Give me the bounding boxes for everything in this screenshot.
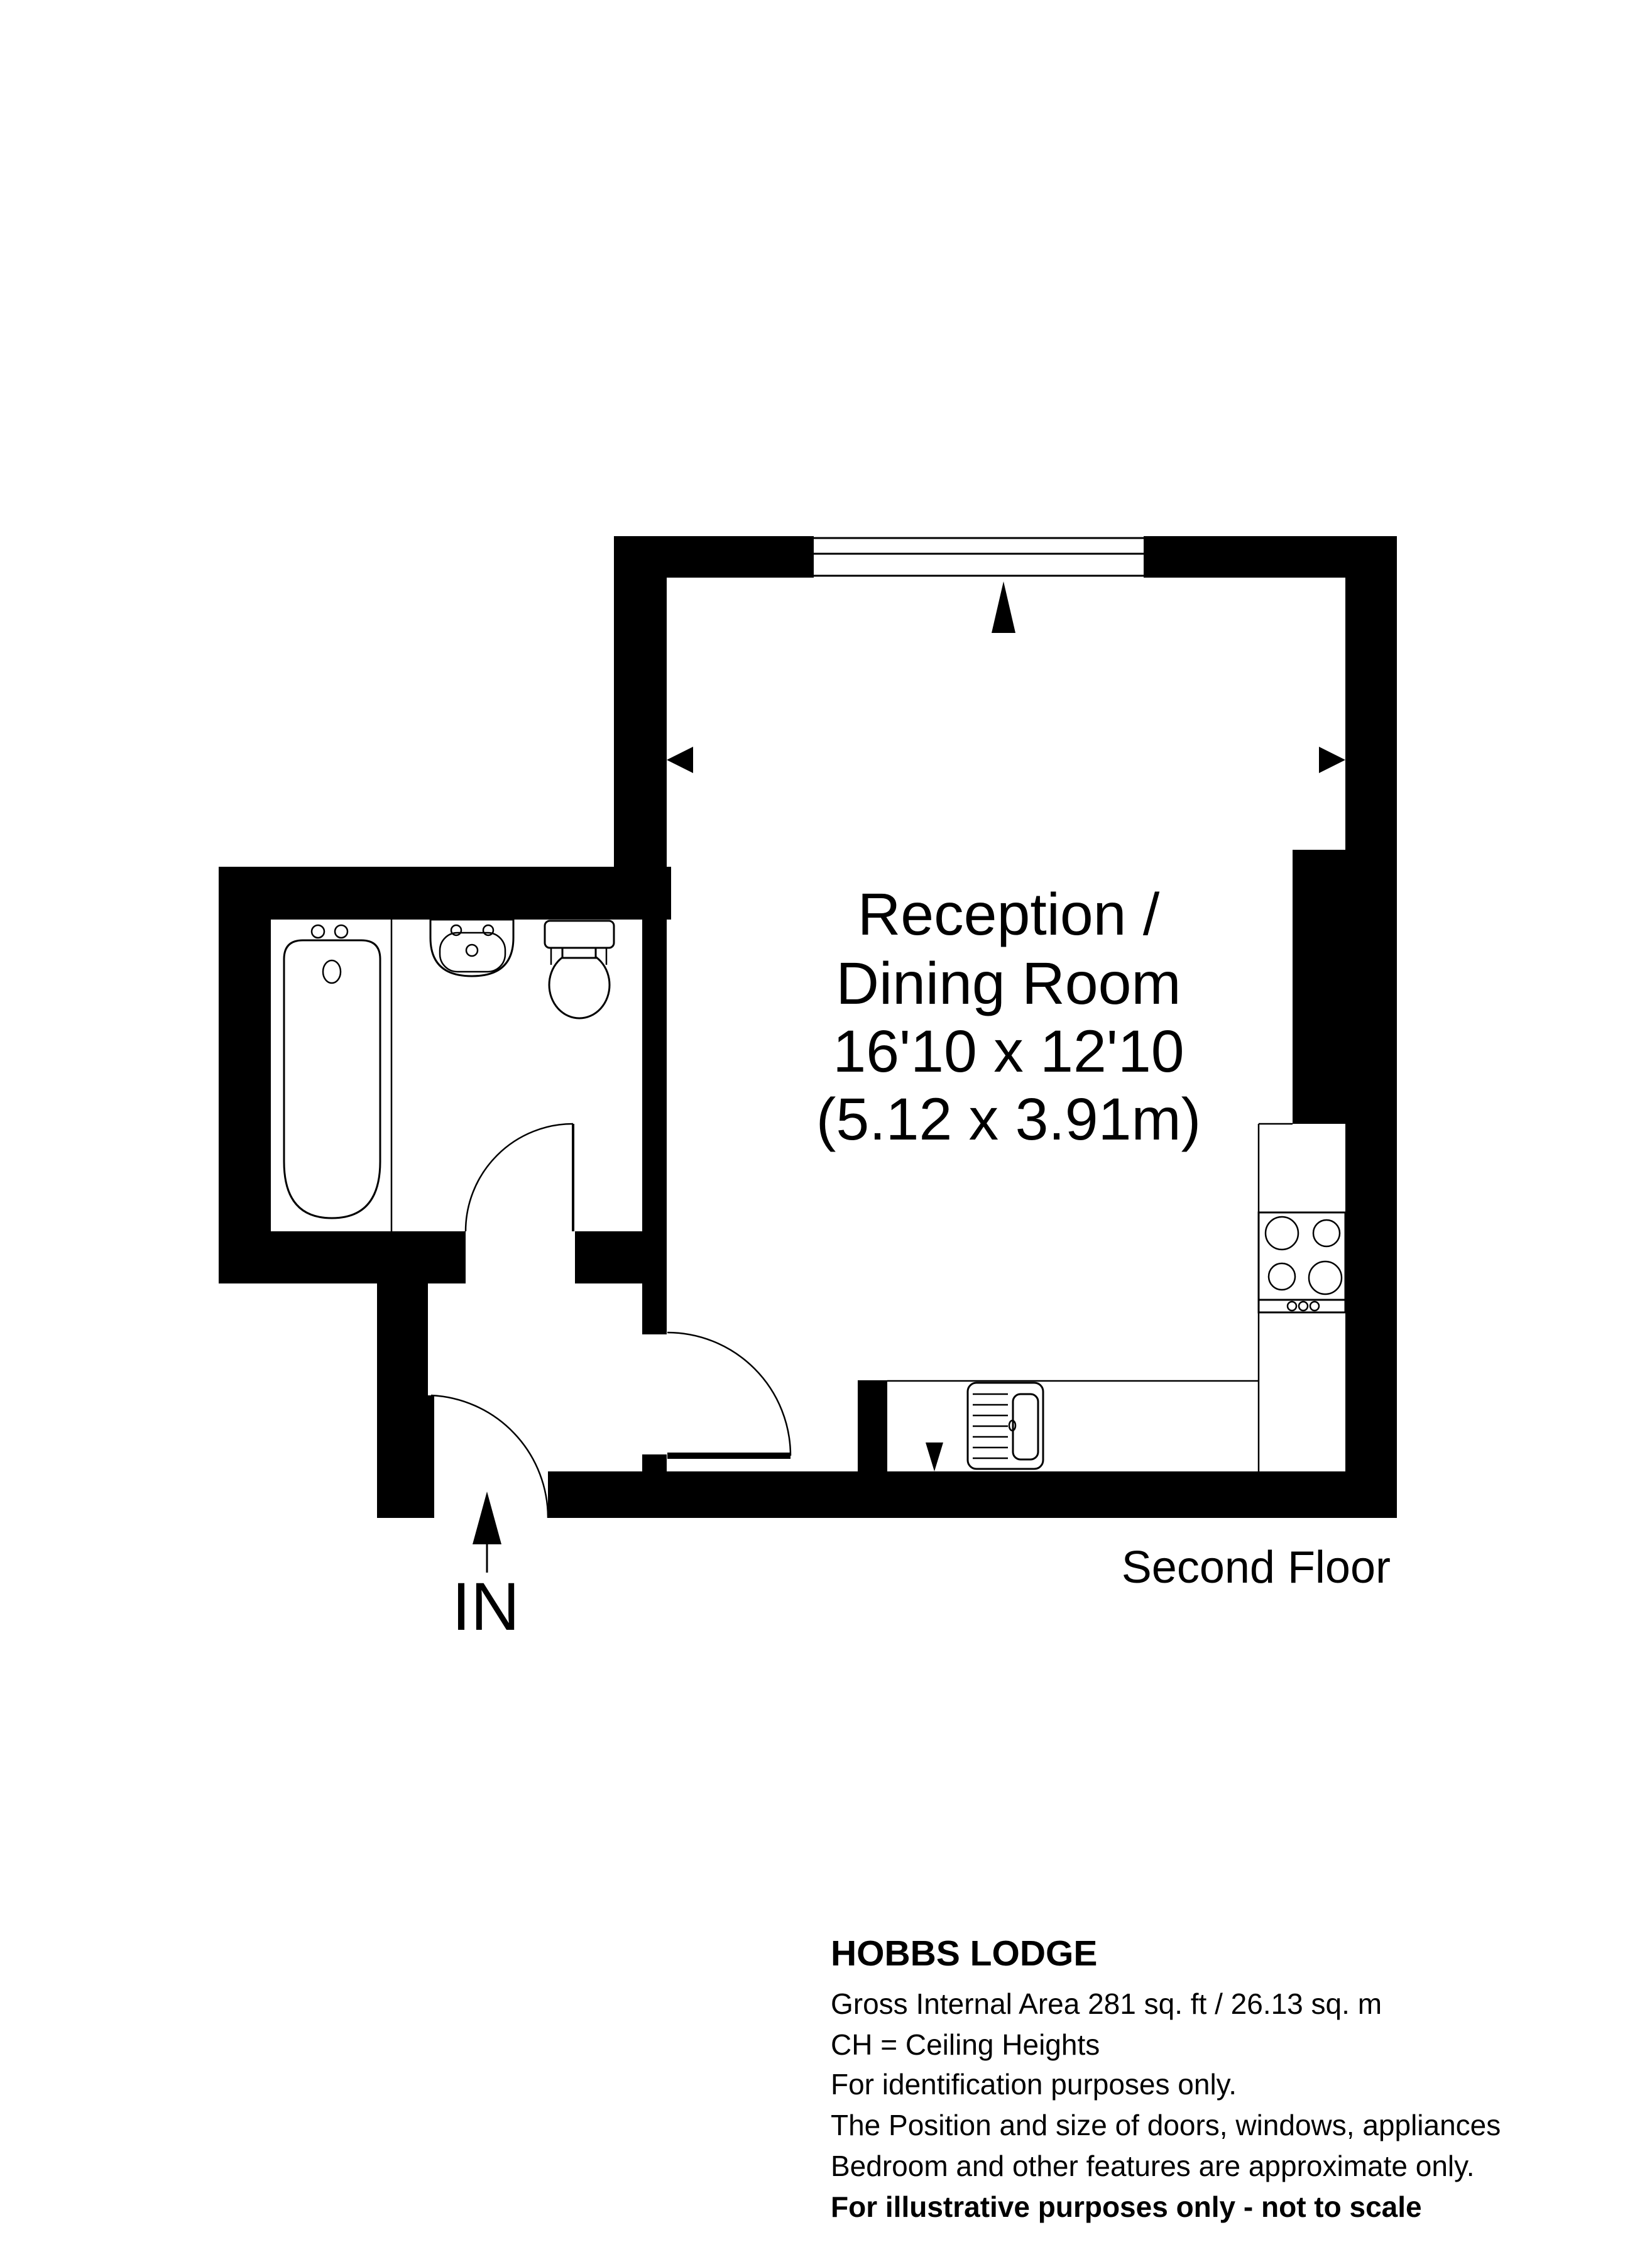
- footer: HOBBS LODGE Gross Internal Area 281 sq. …: [831, 1933, 1501, 2223]
- wall-bathroom-top: [219, 867, 671, 920]
- sink-basin: [1013, 1394, 1038, 1459]
- wall-right-thick-section: [1293, 850, 1397, 1124]
- footer-line-position-size: The Position and size of doors, windows,…: [831, 2109, 1501, 2141]
- wall-kitchen-pier: [858, 1380, 887, 1518]
- reception-door-arc: [667, 1333, 790, 1456]
- window: [814, 536, 1144, 578]
- wall-reception-left: [614, 536, 667, 867]
- entrance-arrow: [473, 1492, 501, 1573]
- footer-line-identification: For identification purposes only.: [831, 2068, 1237, 2101]
- footer-line-approximate: Bedroom and other features are approxima…: [831, 2150, 1475, 2182]
- hob: [1259, 1212, 1345, 1312]
- bath-tap: [312, 925, 324, 938]
- room-label-line-4: (5.12 x 3.91m): [816, 1086, 1201, 1153]
- footer-line-gross-area: Gross Internal Area 281 sq. ft / 26.13 s…: [831, 1987, 1382, 2020]
- dimension-arrow-right-icon: [1319, 747, 1345, 773]
- floor-label: Second Floor: [1122, 1542, 1391, 1593]
- footer-line-not-to-scale: For illustrative purposes only - not to …: [831, 2190, 1422, 2223]
- entrance-arrow-head-icon: [473, 1492, 501, 1544]
- toilet-flush: [562, 948, 596, 958]
- window-opening: [814, 536, 1144, 578]
- walls: [219, 536, 1397, 1518]
- footer-title: HOBBS LODGE: [831, 1933, 1097, 1974]
- room-label-line-1: Reception /: [858, 881, 1160, 948]
- dimension-arrow-down-icon: [926, 1442, 943, 1471]
- bathtub-outline: [284, 940, 380, 1218]
- floor-plan-canvas: Reception / Dining Room 16'10 x 12'10 (5…: [0, 0, 1652, 2264]
- wash-basin: [430, 920, 513, 976]
- dimension-arrow-left-icon: [667, 747, 693, 773]
- room-label-line-3: 16'10 x 12'10: [833, 1018, 1184, 1085]
- doors: [431, 1124, 790, 1518]
- wall-bathroom-bottom-left: [219, 1231, 466, 1283]
- entrance-label: IN: [452, 1568, 520, 1644]
- floorplan-page: { "floorplan": { "room_label": { "line1"…: [0, 0, 1652, 2264]
- room-label-line-2: Dining Room: [836, 950, 1181, 1017]
- wall-bottom-left: [377, 1471, 425, 1518]
- wall-bathroom-bottom-right: [575, 1231, 648, 1283]
- wall-bottom-main: [548, 1471, 1397, 1518]
- kitchen: [887, 1124, 1345, 1471]
- entrance-door-arc: [431, 1395, 548, 1518]
- bathtub: [284, 925, 380, 1218]
- toilet: [545, 921, 614, 1018]
- dimension-arrow-up-icon: [992, 581, 1015, 633]
- wall-bathroom-left: [219, 867, 271, 1283]
- toilet-cistern: [545, 921, 614, 948]
- basin-outline: [430, 920, 513, 976]
- footer-line-ceiling-heights: CH = Ceiling Heights: [831, 2028, 1100, 2061]
- bathroom: [284, 920, 614, 1231]
- bathroom-door-arc: [466, 1124, 573, 1231]
- wall-hall-partition: [642, 920, 667, 1334]
- bath-tap: [335, 925, 347, 938]
- hob-outline: [1259, 1212, 1345, 1300]
- kitchen-sink: [968, 1383, 1043, 1469]
- toilet-bowl: [549, 952, 610, 1018]
